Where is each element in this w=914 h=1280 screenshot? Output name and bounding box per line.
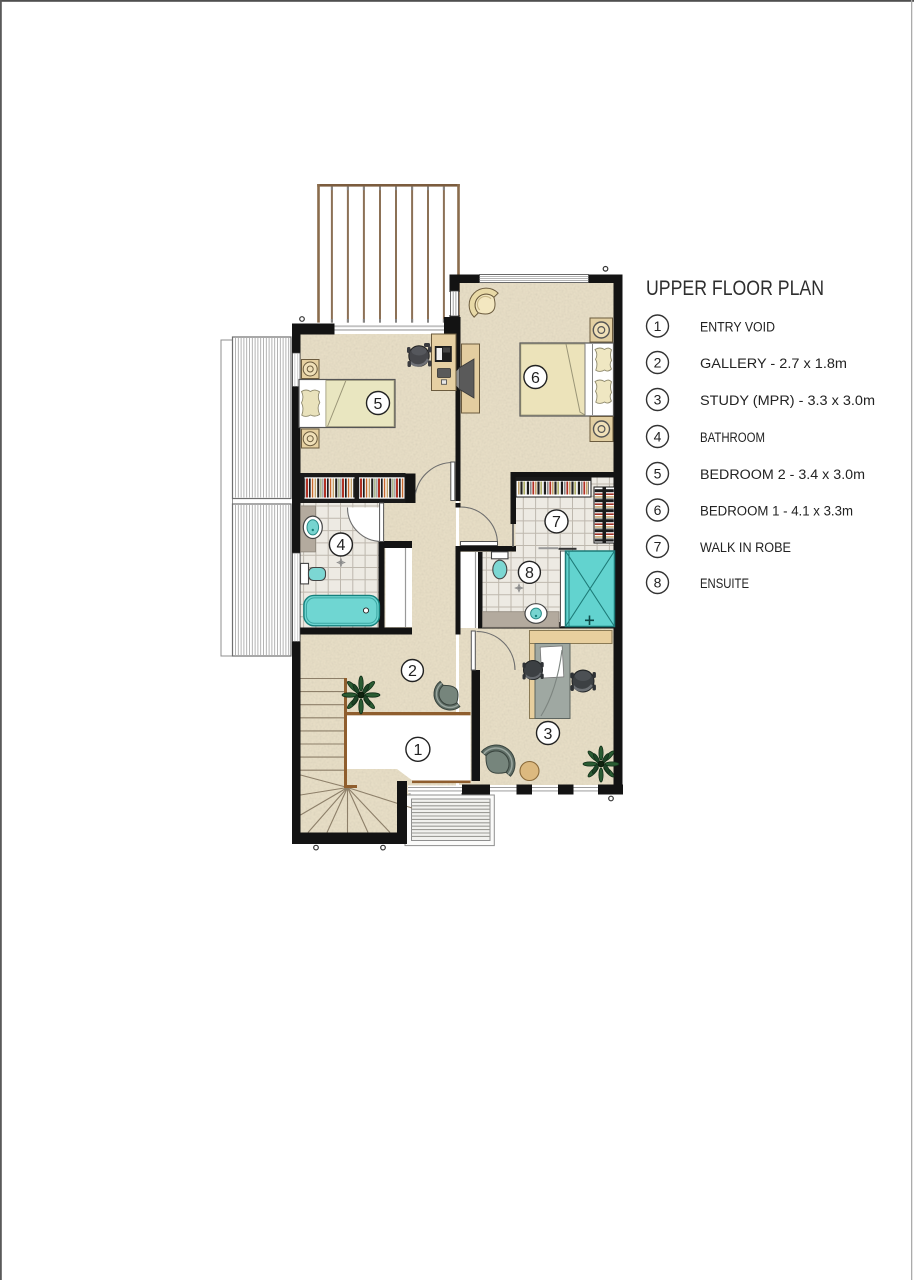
svg-text:GALLERY - 2.7 x 1.8m: GALLERY - 2.7 x 1.8m	[700, 356, 847, 371]
svg-text:WALK IN ROBE: WALK IN ROBE	[700, 540, 791, 555]
svg-text:ENTRY VOID: ENTRY VOID	[700, 320, 775, 335]
svg-text:8: 8	[525, 565, 534, 582]
svg-text:ENSUITE: ENSUITE	[700, 576, 749, 591]
svg-text:8: 8	[654, 575, 662, 591]
svg-text:6: 6	[531, 370, 540, 387]
svg-text:BEDROOM 1 - 4.1 x 3.3m: BEDROOM 1 - 4.1 x 3.3m	[700, 504, 853, 519]
svg-text:4: 4	[654, 429, 662, 445]
svg-text:4: 4	[336, 537, 345, 554]
svg-text:3: 3	[654, 392, 662, 408]
svg-text:6: 6	[654, 502, 662, 518]
svg-text:7: 7	[552, 514, 561, 531]
svg-text:2: 2	[408, 663, 417, 680]
svg-text:UPPER FLOOR PLAN: UPPER FLOOR PLAN	[646, 276, 824, 300]
svg-text:BEDROOM 2 - 3.4 x 3.0m: BEDROOM 2 - 3.4 x 3.0m	[700, 467, 865, 482]
svg-text:3: 3	[544, 726, 553, 743]
svg-text:BATHROOM: BATHROOM	[700, 430, 765, 445]
svg-text:5: 5	[374, 396, 383, 413]
svg-text:7: 7	[654, 539, 662, 555]
svg-text:5: 5	[654, 466, 662, 482]
svg-text:1: 1	[413, 742, 422, 759]
svg-text:1: 1	[654, 318, 662, 334]
svg-text:2: 2	[654, 355, 662, 371]
svg-text:STUDY (MPR) - 3.3 x 3.0m: STUDY (MPR) - 3.3 x 3.0m	[700, 393, 875, 408]
